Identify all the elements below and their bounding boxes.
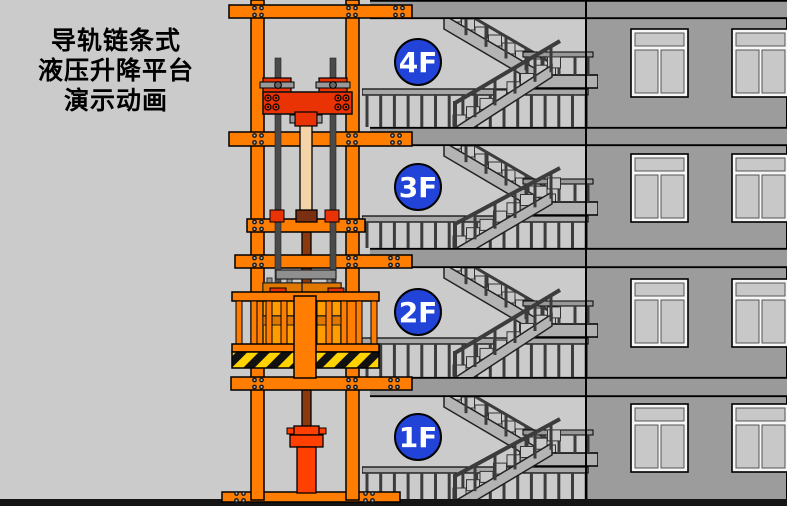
platform-guide-column — [294, 296, 316, 378]
window — [732, 279, 787, 347]
window — [732, 29, 787, 97]
title-line-3: 演示动画 — [0, 86, 232, 116]
window — [631, 154, 688, 222]
floor-badge: 3F — [395, 164, 441, 210]
window — [631, 404, 688, 472]
title-line-2: 液压升降平台 — [0, 56, 232, 86]
window — [631, 279, 688, 347]
animation-frame: 4F3F2F1F 导轨链条式 液压升降平台 演示动画 — [0, 0, 787, 506]
window — [631, 29, 688, 97]
floor-badge-label: 3F — [399, 171, 438, 204]
piston-rod-upper — [300, 124, 312, 214]
window — [732, 404, 787, 472]
rod-collar — [296, 210, 317, 222]
floor-badge-label: 4F — [399, 46, 438, 79]
floor-badge: 1F — [395, 414, 441, 460]
floor-badge-label: 1F — [399, 421, 438, 454]
title-block: 导轨链条式 液压升降平台 演示动画 — [0, 26, 232, 116]
floor-badge: 2F — [395, 289, 441, 335]
window — [732, 154, 787, 222]
title-line-1: 导轨链条式 — [0, 26, 232, 56]
floor-badge: 4F — [395, 39, 441, 85]
floor-badge-label: 2F — [399, 296, 438, 329]
